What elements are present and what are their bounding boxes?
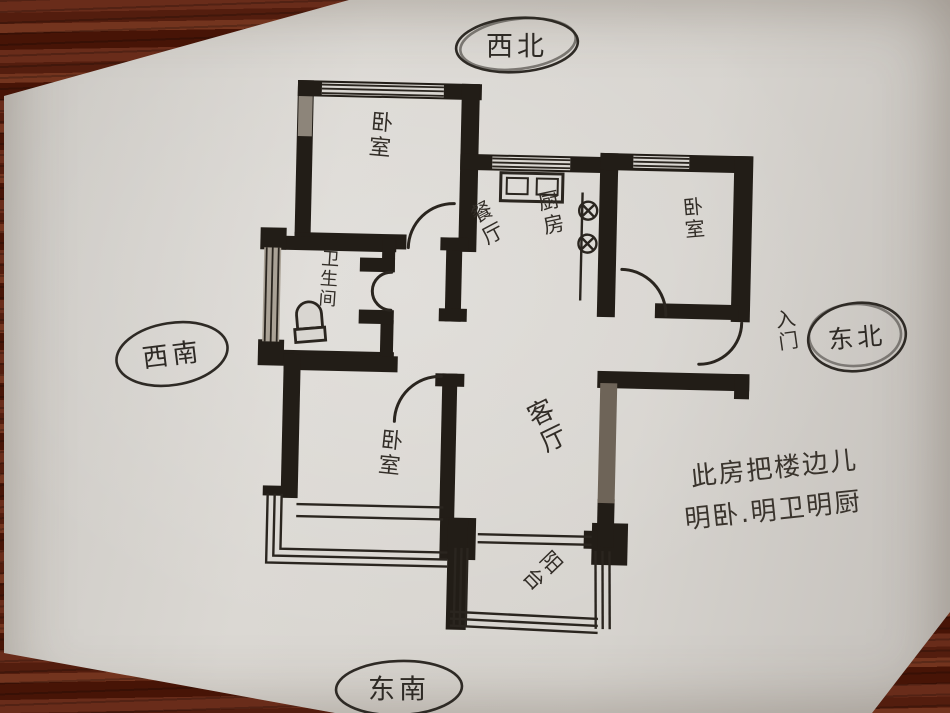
compass-southwest-label: 西南 [140, 331, 204, 375]
wall [281, 354, 301, 498]
pencil-wall-living-right [598, 383, 618, 503]
wall [260, 227, 286, 250]
room-label-bedroom-top-right: 卧室 [682, 195, 709, 242]
room-label-bedroom-bottom: 卧室 [377, 429, 407, 481]
room-label-bathroom: 卫生间 [318, 249, 343, 311]
plan-walls-group [252, 79, 756, 636]
compass-ellipses [112, 12, 910, 713]
balcony-threshold [478, 534, 592, 537]
wall [597, 371, 749, 391]
compass-northeast-label: 东北 [827, 316, 888, 357]
wall [597, 499, 615, 547]
door-arc-bathroom [372, 272, 392, 310]
wall [655, 303, 739, 320]
bay-window-bottom-bedroom [266, 493, 449, 566]
window-top-left-bedroom-west [298, 96, 313, 136]
window-top-right-bedroom-north [633, 156, 689, 169]
window-kitchen-north [492, 156, 570, 170]
wall [731, 156, 754, 322]
wall [584, 531, 598, 549]
wall [597, 153, 619, 317]
room-label-bedroom-top-left: 卧室 [368, 111, 397, 162]
wall [359, 309, 394, 324]
photo-of-floor-plan: 西北 西南 东北 东南 卧室 餐厅 厨房 卧室 卫生间 客厅 卧室 阳台 入门 … [0, 0, 950, 713]
wall [360, 257, 395, 272]
compass-northwest-label: 西北 [486, 25, 548, 64]
compass-southeast-label: 东南 [368, 668, 430, 707]
wall [439, 373, 457, 519]
door-arc-bottom-bedroom [394, 375, 441, 422]
wall [734, 374, 750, 399]
door-arc-entrance [699, 322, 742, 365]
wall [439, 308, 467, 322]
wall [440, 237, 468, 251]
wall [258, 339, 285, 366]
